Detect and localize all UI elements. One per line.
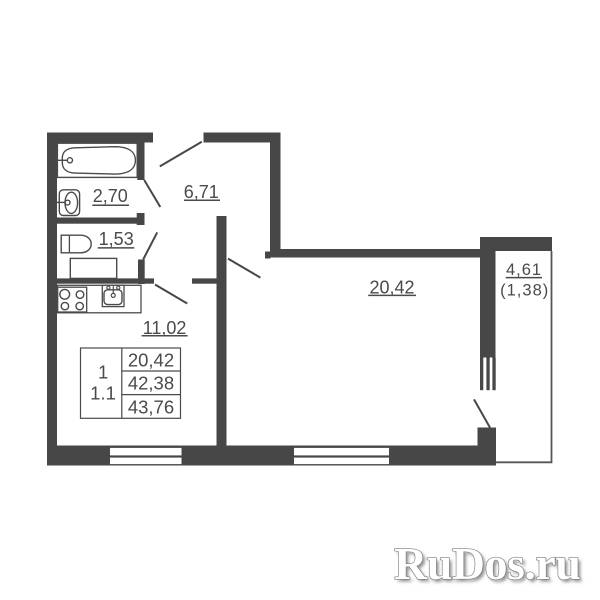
svg-text:20,42: 20,42 (369, 277, 414, 297)
svg-text:1: 1 (98, 361, 108, 382)
svg-text:1,53: 1,53 (99, 229, 134, 249)
svg-text:42,38: 42,38 (128, 373, 174, 394)
svg-text:4,61: 4,61 (506, 261, 542, 279)
svg-text:RuDos.ru: RuDos.ru (394, 538, 580, 589)
svg-text:(1,38): (1,38) (500, 282, 549, 300)
svg-text:2,70: 2,70 (93, 186, 128, 206)
svg-text:1.1: 1.1 (90, 383, 116, 404)
svg-text:6,71: 6,71 (184, 182, 219, 202)
svg-text:20,42: 20,42 (128, 349, 174, 370)
svg-text:43,76: 43,76 (128, 396, 174, 417)
